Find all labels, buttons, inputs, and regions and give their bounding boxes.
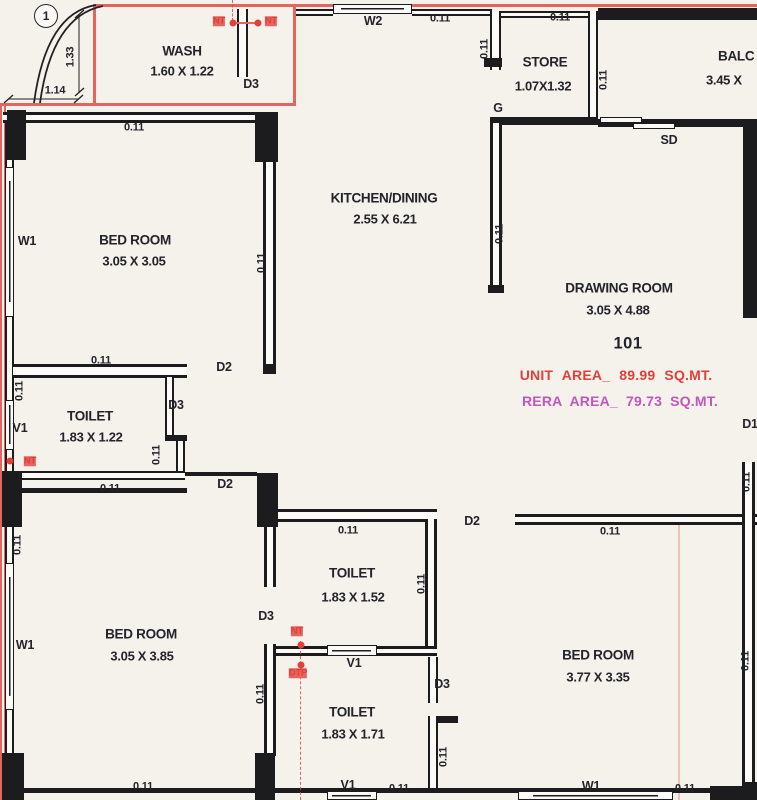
dimension-label: 1.33 <box>66 47 77 68</box>
room-dims-toilet1: 1.83 X 1.22 <box>59 431 122 444</box>
floor-plan: WASH 1.60 X 1.22 STORE 1.07X1.32 BALC 3.… <box>0 0 757 800</box>
window-label: V1 <box>341 779 356 792</box>
plumb-point <box>255 20 262 27</box>
window-w2 <box>333 4 412 14</box>
dim-label: 0.11 <box>152 445 163 465</box>
plumbing-label: NT <box>291 626 303 636</box>
red-boundary-left-outer <box>0 103 2 800</box>
dim-label: 0.11 <box>495 224 506 244</box>
door-label: D3 <box>243 78 259 91</box>
wall-right-solid-upper <box>743 126 757 318</box>
window-label: W1 <box>582 780 600 793</box>
column-marker: 1 <box>34 4 58 28</box>
plumb-point <box>298 642 305 649</box>
room-name-toilet2: TOILET <box>329 566 375 580</box>
column-toilet3-bottomleft <box>255 753 275 800</box>
dim-label: 0.11 <box>15 381 26 401</box>
wall-bed3-top <box>515 514 757 525</box>
room-name-wash: WASH <box>162 44 201 58</box>
wall-toilet2-left <box>264 525 276 587</box>
window-label: W1 <box>18 235 36 248</box>
wall-kitchen-drawing-separator <box>490 123 502 293</box>
wall-separator-cap <box>488 285 504 293</box>
room-dims-store: 1.07X1.32 <box>515 80 572 93</box>
room-name-bed3: BED ROOM <box>562 648 634 662</box>
dim-label: 0.11 <box>338 526 358 537</box>
window-v1-toilet2 <box>327 645 377 656</box>
wall-wash-right-stub <box>237 9 248 77</box>
wall-hall-south <box>278 509 437 522</box>
red-boundary-wash-right <box>293 4 296 105</box>
unit-number: 101 <box>613 335 642 354</box>
plumb-point <box>230 20 237 27</box>
room-name-kitchen: KITCHEN/DINING <box>331 191 438 205</box>
dim-label: 0.11 <box>389 784 409 795</box>
room-dims-drawing: 3.05 X 4.88 <box>586 304 649 317</box>
column-bed1-topright <box>255 112 278 162</box>
dim-label: 0.11 <box>430 14 450 25</box>
room-dims-toilet3: 1.83 X 1.71 <box>321 728 384 741</box>
wall-right-outer <box>742 462 755 787</box>
plumb-line-top <box>232 0 233 21</box>
dim-label: 0.11 <box>439 747 450 767</box>
room-dims-kitchen: 2.55 X 6.21 <box>353 213 416 226</box>
dim-label: 0.11 <box>13 535 24 555</box>
room-dims-bed3: 3.77 X 3.35 <box>566 671 629 684</box>
door-label: D2 <box>217 478 233 491</box>
dim-label: 0.11 <box>100 484 120 495</box>
room-name-balcony: BALC <box>718 49 754 63</box>
column-center <box>257 473 278 527</box>
room-name-store: STORE <box>523 55 568 69</box>
room-dims-balcony: 3.45 X <box>706 74 742 87</box>
window-w1-bed2 <box>5 563 14 710</box>
plumbing-label: NT <box>24 456 36 466</box>
window-label: V1 <box>13 422 28 435</box>
rera-area-text: RERA AREA_ 79.73 SQ.MT. <box>522 393 718 409</box>
dim-label: 0.11 <box>675 784 695 795</box>
door-label: D2 <box>464 515 480 528</box>
dim-label: 0.11 <box>600 527 620 538</box>
wall-toilet1-right-lower <box>176 441 185 475</box>
wall-kitchen-top-right <box>412 9 492 16</box>
dim-label: 0.11 <box>480 39 491 59</box>
dim-label: 0.11 <box>599 70 610 90</box>
room-name-toilet3: TOILET <box>329 705 375 719</box>
door-label: D2 <box>216 361 232 374</box>
window-v1-toilet3 <box>327 791 377 800</box>
dimension-label: 1.14 <box>45 86 66 97</box>
dim-label: 0.11 <box>550 13 570 24</box>
unit-area-text: UNIT AREA_ 89.99 SQ.MT. <box>520 367 713 383</box>
dim-label: 0.11 <box>133 782 153 793</box>
door-label: D1 <box>742 418 757 431</box>
room-name-bed2: BED ROOM <box>105 627 177 641</box>
wall-store-left-cap <box>484 58 502 67</box>
door-label: D3 <box>434 678 450 691</box>
column-right-bottom <box>742 782 757 800</box>
column-left-mid <box>2 471 22 527</box>
dim-label: 0.11 <box>417 574 428 594</box>
room-name-bed1: BED ROOM <box>99 233 171 247</box>
window-label: W2 <box>364 15 382 28</box>
door-label: SD <box>661 134 678 147</box>
sliding-door-leaf-2 <box>633 123 675 129</box>
room-name-drawing: DRAWING ROOM <box>565 281 672 295</box>
plumbing-label: DTP <box>289 668 307 678</box>
wall-hall-line <box>185 472 257 476</box>
dim-label: 0.11 <box>91 356 111 367</box>
column-left-bottom <box>2 753 24 800</box>
red-boundary-top <box>94 4 757 7</box>
plumbing-label: NT <box>213 16 225 26</box>
dim-label: 0.11 <box>741 651 752 671</box>
room-dims-wash: 1.60 X 1.22 <box>150 65 213 78</box>
door-label: D3 <box>258 610 274 623</box>
room-dims-bed1: 3.05 X 3.05 <box>102 255 165 268</box>
wall-toilet1-bottom <box>13 471 185 480</box>
window-label: W1 <box>16 639 34 652</box>
door-label: D3 <box>168 399 184 412</box>
red-fold-line <box>678 515 680 800</box>
window-w1-bed1 <box>5 167 14 317</box>
room-dims-toilet2: 1.83 X 1.52 <box>321 591 384 604</box>
wall-store-right <box>588 11 598 125</box>
column-arc-base <box>7 110 26 160</box>
window-label: V1 <box>347 657 362 670</box>
plumb-point <box>7 458 14 465</box>
wall-store-top <box>490 11 598 18</box>
dim-label: 0.11 <box>124 123 144 134</box>
dim-label: 0.11 <box>257 253 268 273</box>
wall-store-bottom <box>490 117 598 125</box>
plumbing-label: NT <box>265 16 277 26</box>
dim-label: 0.11 <box>256 684 267 704</box>
dim-label: 0.11 <box>742 472 753 492</box>
room-dims-bed2: 3.05 X 3.85 <box>110 650 173 663</box>
wall-bed1-right-cap <box>263 364 276 374</box>
door-label: G <box>493 102 503 115</box>
wall-kitchen-top-left <box>296 9 333 16</box>
room-name-toilet1: TOILET <box>67 409 113 423</box>
wall-toilet3-right-lower <box>428 716 438 792</box>
wall-balcony-top <box>598 8 757 20</box>
